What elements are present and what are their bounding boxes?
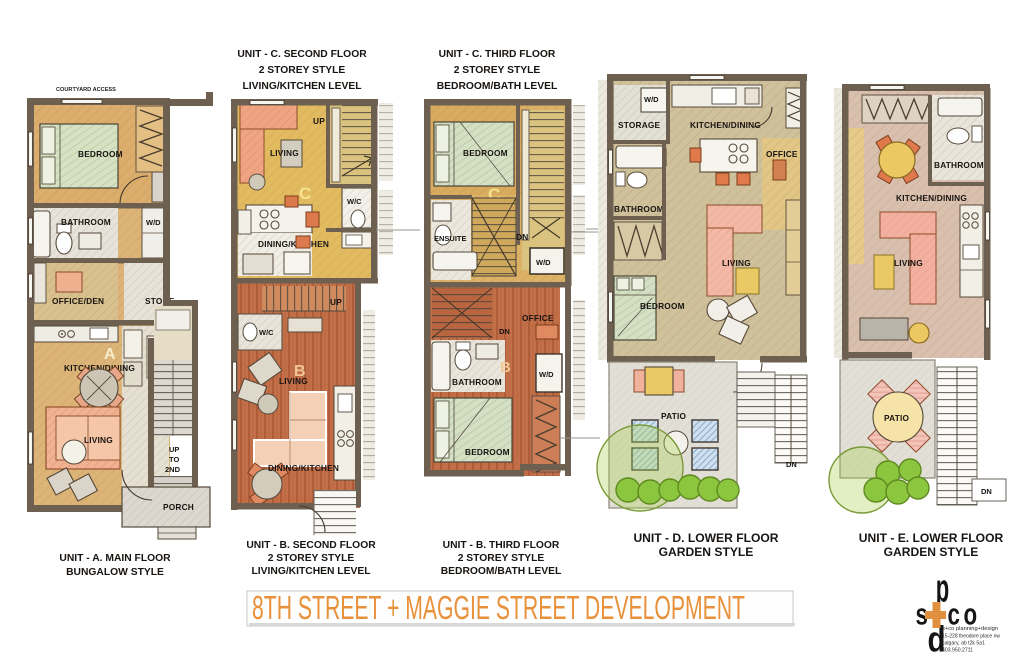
svg-text:PORCH: PORCH	[163, 502, 194, 512]
svg-text:DN: DN	[499, 327, 510, 336]
svg-text:2 STOREY STYLE: 2 STOREY STYLE	[458, 553, 545, 564]
svg-text:A: A	[104, 346, 116, 363]
svg-text:calgary, ab t2k 5a1: calgary, ab t2k 5a1	[942, 640, 985, 646]
svg-text:UNIT - E. LOWER FLOOR: UNIT - E. LOWER FLOOR	[859, 531, 1004, 545]
svg-text:OFFICE/DEN: OFFICE/DEN	[52, 296, 104, 306]
svg-text:W/D: W/D	[644, 95, 659, 104]
svg-text:UNIT - A. MAIN FLOOR: UNIT - A. MAIN FLOOR	[59, 553, 171, 564]
svg-text:DN: DN	[981, 487, 992, 496]
svg-text:2 STOREY STYLE: 2 STOREY STYLE	[268, 553, 355, 564]
svg-text:BEDROOM: BEDROOM	[78, 149, 123, 159]
svg-text:GARDEN STYLE: GARDEN STYLE	[659, 545, 754, 559]
svg-text:UNIT - C. SECOND FLOOR: UNIT - C. SECOND FLOOR	[237, 49, 367, 60]
svg-text:COURTYARD ACCESS: COURTYARD ACCESS	[56, 87, 116, 93]
svg-text:BATHROOM: BATHROOM	[614, 204, 664, 214]
svg-text:ENSUITE: ENSUITE	[434, 234, 467, 243]
svg-text:LIVING/KITCHEN LEVEL: LIVING/KITCHEN LEVEL	[252, 566, 371, 577]
svg-text:BATHROOM: BATHROOM	[934, 160, 984, 170]
svg-text:DN: DN	[786, 460, 797, 469]
svg-text:OFFICE: OFFICE	[522, 313, 554, 323]
svg-text:LIVING: LIVING	[722, 258, 751, 268]
svg-text:UP: UP	[330, 297, 342, 307]
svg-text:UNIT - D. LOWER FLOOR: UNIT - D. LOWER FLOOR	[633, 531, 778, 545]
svg-text:8TH STREET + MAGGIE STREET DEV: 8TH STREET + MAGGIE STREET DEVELOPMENT	[252, 589, 745, 626]
svg-text:BATHROOM: BATHROOM	[452, 377, 502, 387]
svg-text:TO: TO	[169, 455, 179, 464]
svg-text:BUNGALOW STYLE: BUNGALOW STYLE	[66, 567, 164, 578]
svg-text:W/C: W/C	[259, 328, 274, 337]
svg-text:W/D: W/D	[539, 370, 554, 379]
svg-text:BEDROOM/BATH LEVEL: BEDROOM/BATH LEVEL	[441, 566, 562, 577]
svg-text:BEDROOM: BEDROOM	[463, 148, 508, 158]
svg-text:403.950.2711: 403.950.2711	[942, 648, 973, 654]
svg-text:DINING/KITCHEN: DINING/KITCHEN	[258, 239, 329, 249]
svg-text:2 STOREY STYLE: 2 STOREY STYLE	[259, 65, 346, 76]
svg-text:OFFICE: OFFICE	[766, 149, 798, 159]
svg-text:LIVING: LIVING	[894, 258, 923, 268]
svg-text:LIVING: LIVING	[279, 376, 308, 386]
svg-text:LIVING: LIVING	[84, 435, 113, 445]
svg-text:DN: DN	[516, 232, 528, 242]
svg-text:UP: UP	[313, 116, 325, 126]
svg-text:15-228 theodore place nw: 15-228 theodore place nw	[942, 633, 1001, 639]
svg-text:LIVING/KITCHEN LEVEL: LIVING/KITCHEN LEVEL	[243, 81, 362, 92]
svg-text:STORAGE: STORAGE	[618, 120, 661, 130]
svg-text:LIVING: LIVING	[270, 148, 299, 158]
svg-text:C: C	[299, 184, 311, 203]
svg-text:BATHROOM: BATHROOM	[61, 217, 111, 227]
svg-text:BEDROOM: BEDROOM	[640, 301, 685, 311]
svg-text:PATIO: PATIO	[661, 411, 686, 421]
svg-text:2 STOREY STYLE: 2 STOREY STYLE	[454, 65, 541, 76]
svg-text:KITCHEN/DINING: KITCHEN/DINING	[690, 120, 761, 130]
svg-text:W/C: W/C	[347, 197, 362, 206]
svg-text:2ND: 2ND	[165, 465, 181, 474]
svg-text:KITCHEN/DINING: KITCHEN/DINING	[896, 193, 967, 203]
svg-text:UNIT - B. SECOND FLOOR: UNIT - B. SECOND FLOOR	[246, 540, 376, 551]
svg-text:PATIO: PATIO	[884, 413, 909, 423]
svg-text:UNIT - C. THIRD FLOOR: UNIT - C. THIRD FLOOR	[439, 49, 556, 60]
svg-text:BEDROOM: BEDROOM	[465, 447, 510, 457]
svg-text:W/D: W/D	[536, 258, 551, 267]
svg-text:DINING/KITCHEN: DINING/KITCHEN	[268, 463, 339, 473]
svg-text:BEDROOM/BATH LEVEL: BEDROOM/BATH LEVEL	[437, 81, 558, 92]
svg-text:W/D: W/D	[146, 218, 161, 227]
svg-text:s+co planning+design: s+co planning+design	[942, 626, 998, 632]
svg-text:UNIT - B. THIRD FLOOR: UNIT - B. THIRD FLOOR	[443, 540, 560, 551]
svg-text:GARDEN STYLE: GARDEN STYLE	[884, 545, 979, 559]
svg-text:B: B	[500, 359, 511, 376]
svg-text:UP: UP	[169, 445, 179, 454]
